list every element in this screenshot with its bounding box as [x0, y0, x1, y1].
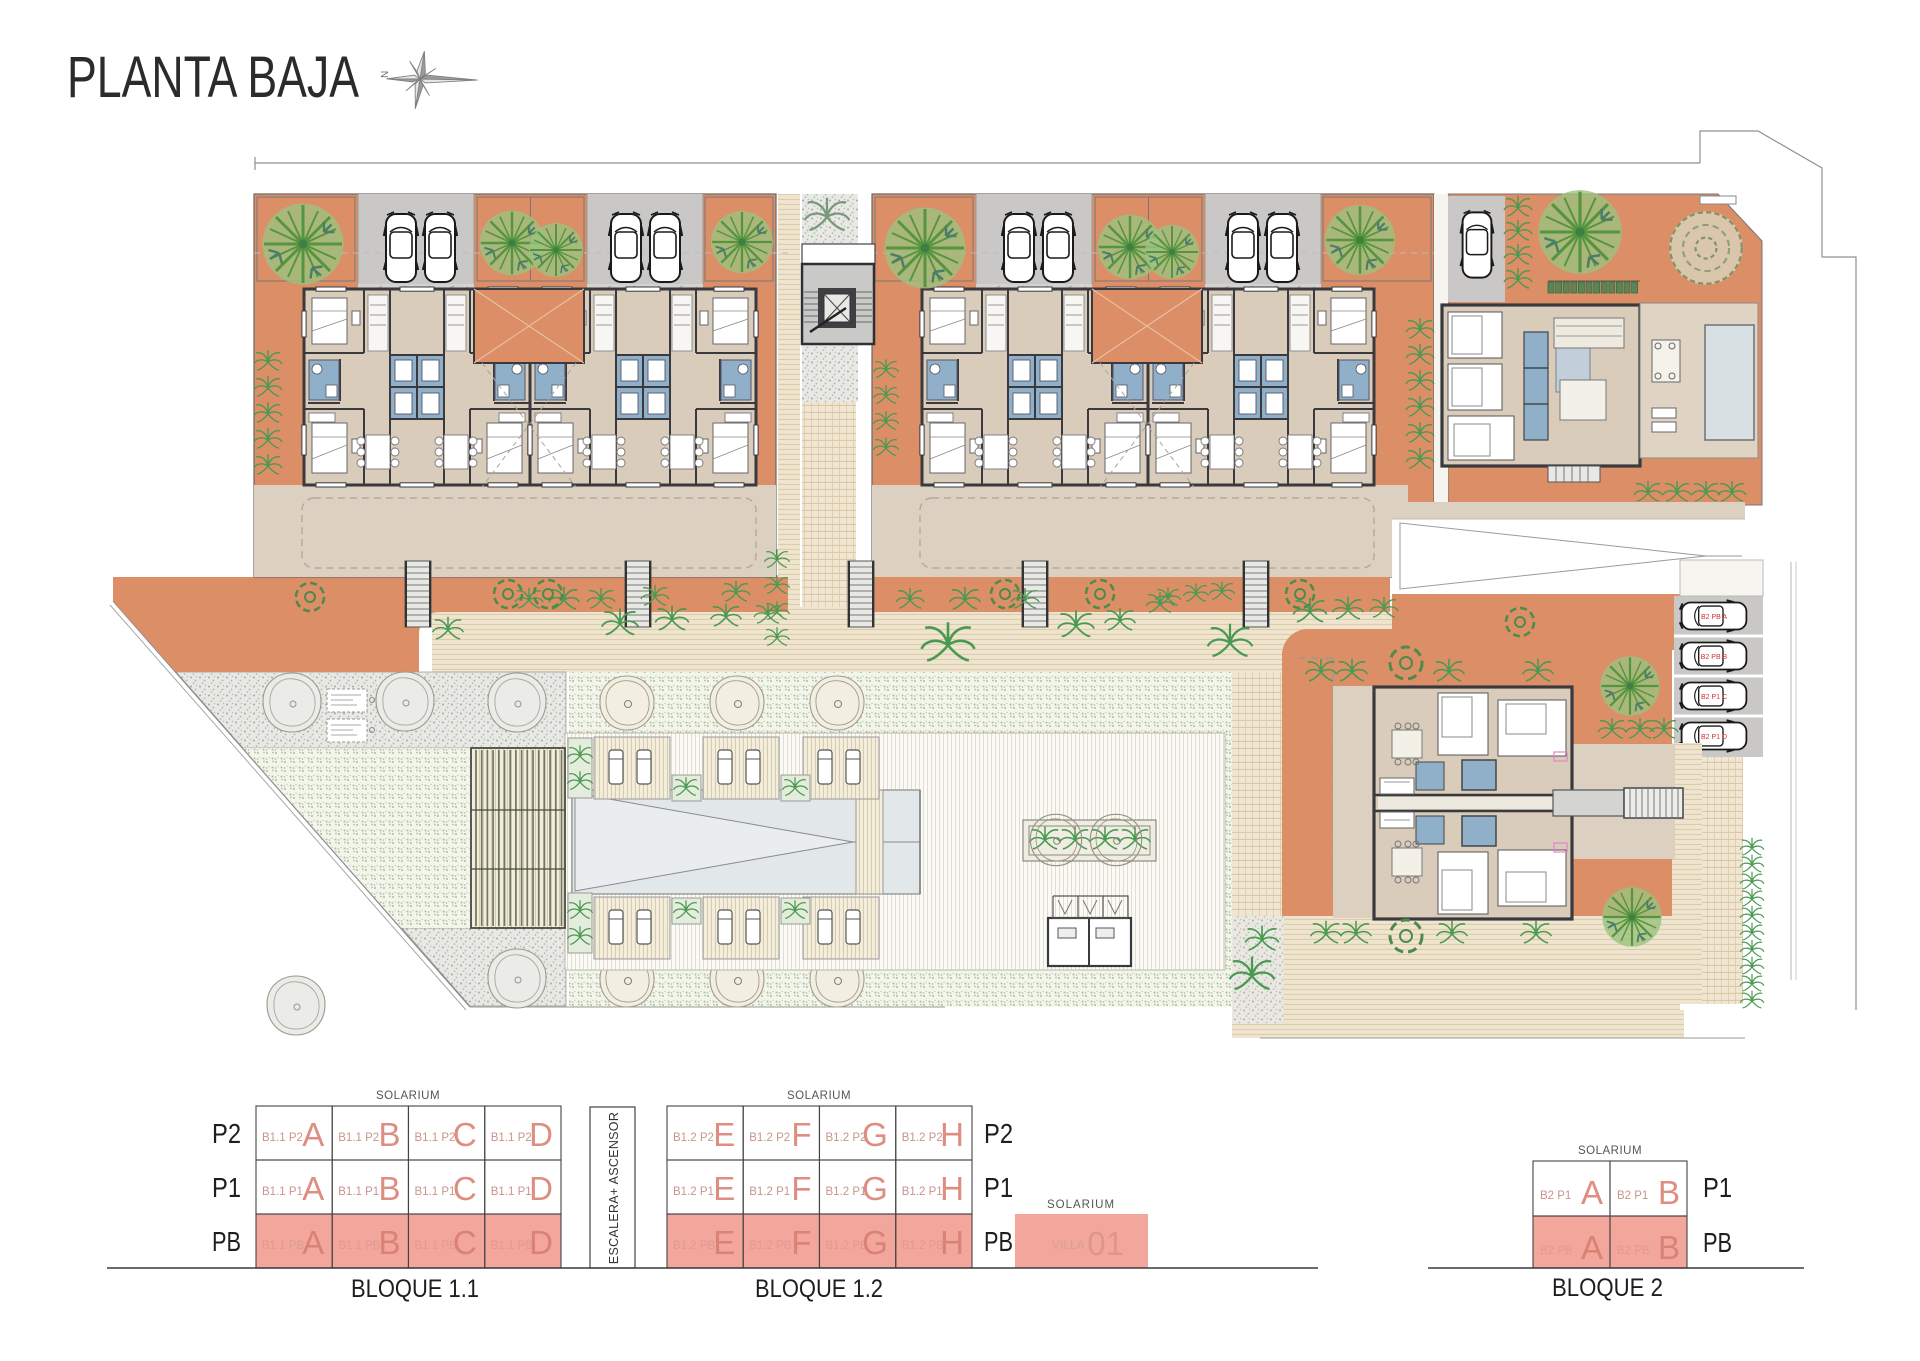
svg-text:B1.1 P1: B1.1 P1 [338, 1186, 379, 1198]
svg-text:VILLA: VILLA [1052, 1238, 1085, 1252]
svg-text:H: H [940, 1170, 964, 1207]
svg-text:B1.2 P1: B1.2 P1 [749, 1186, 790, 1198]
svg-text:B1.1 P2: B1.1 P2 [415, 1132, 456, 1144]
svg-text:P2: P2 [212, 1118, 241, 1149]
svg-text:A: A [1581, 1174, 1603, 1211]
svg-text:E: E [713, 1170, 735, 1207]
svg-text:C: C [453, 1170, 477, 1207]
svg-text:D: D [529, 1224, 553, 1261]
svg-text:P2: P2 [984, 1118, 1013, 1149]
svg-text:B1.1 P2: B1.1 P2 [491, 1132, 532, 1144]
svg-text:PLANTA BAJA: PLANTA BAJA [67, 45, 359, 110]
svg-text:F: F [791, 1224, 811, 1261]
svg-text:B1.1 PB: B1.1 PB [338, 1240, 381, 1252]
svg-text:B2 PB: B2 PB [1617, 1245, 1650, 1257]
svg-text:F: F [791, 1116, 811, 1153]
svg-text:B1.2 P2: B1.2 P2 [826, 1132, 867, 1144]
svg-text:C: C [453, 1116, 477, 1153]
svg-text:B1.2 P1: B1.2 P1 [902, 1186, 943, 1198]
svg-text:ESCALERA+ ASCENSOR: ESCALERA+ ASCENSOR [607, 1112, 621, 1264]
svg-text:BLOQUE 2: BLOQUE 2 [1552, 1274, 1663, 1302]
svg-text:B1.2 P2: B1.2 P2 [902, 1132, 943, 1144]
svg-text:PB: PB [1703, 1227, 1732, 1258]
svg-text:B1.2 PB: B1.2 PB [673, 1240, 716, 1252]
svg-text:C: C [453, 1224, 477, 1261]
svg-text:A: A [302, 1116, 324, 1153]
svg-text:B2 PB A: B2 PB A [1701, 614, 1727, 621]
svg-text:P1: P1 [212, 1172, 241, 1203]
svg-text:B1.1 P1: B1.1 P1 [262, 1186, 303, 1198]
svg-text:F: F [791, 1170, 811, 1207]
svg-text:PB: PB [984, 1226, 1013, 1257]
svg-text:B2 P1 D: B2 P1 D [1701, 734, 1727, 741]
svg-text:B: B [378, 1116, 400, 1153]
svg-text:B1.2 P2: B1.2 P2 [749, 1132, 790, 1144]
svg-text:D: D [529, 1170, 553, 1207]
svg-text:B1.2 PB: B1.2 PB [749, 1240, 792, 1252]
svg-text:G: G [862, 1224, 888, 1261]
svg-text:H: H [940, 1224, 964, 1261]
svg-text:BLOQUE 1.2: BLOQUE 1.2 [755, 1275, 883, 1303]
svg-text:P1: P1 [1703, 1172, 1732, 1203]
svg-text:E: E [713, 1224, 735, 1261]
svg-text:B1.2 P1: B1.2 P1 [673, 1186, 714, 1198]
svg-text:B1.1 P2: B1.1 P2 [262, 1132, 303, 1144]
svg-text:01: 01 [1087, 1225, 1124, 1262]
svg-text:D: D [529, 1116, 553, 1153]
svg-text:B1.1 P1: B1.1 P1 [415, 1186, 456, 1198]
svg-text:B1.2 P2: B1.2 P2 [673, 1132, 714, 1144]
svg-text:B: B [1658, 1174, 1680, 1211]
svg-text:B2 PB: B2 PB [1540, 1245, 1573, 1257]
svg-text:B1.1 PB: B1.1 PB [491, 1240, 534, 1252]
svg-text:A: A [302, 1224, 324, 1261]
svg-text:B2 P1: B2 P1 [1617, 1190, 1648, 1202]
svg-text:A: A [1581, 1229, 1603, 1266]
svg-text:B1.1 PB: B1.1 PB [415, 1240, 458, 1252]
svg-text:BLOQUE 1.1: BLOQUE 1.1 [351, 1275, 479, 1303]
svg-text:H: H [940, 1116, 964, 1153]
svg-text:SOLARIUM: SOLARIUM [376, 1090, 440, 1102]
svg-text:G: G [862, 1116, 888, 1153]
svg-text:B: B [1658, 1229, 1680, 1266]
svg-text:B1.1 P2: B1.1 P2 [338, 1132, 379, 1144]
svg-text:SOLARIUM: SOLARIUM [1047, 1199, 1115, 1211]
svg-text:B1.2 P1: B1.2 P1 [826, 1186, 867, 1198]
svg-text:B2 P1: B2 P1 [1540, 1190, 1571, 1202]
svg-text:B2 P1 C: B2 P1 C [1701, 694, 1727, 701]
svg-text:A: A [302, 1170, 324, 1207]
svg-text:B1.2 PB: B1.2 PB [902, 1240, 945, 1252]
svg-text:SOLARIUM: SOLARIUM [1578, 1145, 1642, 1157]
svg-text:E: E [713, 1116, 735, 1153]
svg-text:PB: PB [212, 1226, 241, 1257]
svg-text:B: B [378, 1224, 400, 1261]
svg-text:B2 PB B: B2 PB B [1701, 654, 1728, 661]
svg-text:G: G [862, 1170, 888, 1207]
svg-text:P1: P1 [984, 1172, 1013, 1203]
svg-text:B: B [378, 1170, 400, 1207]
svg-text:N: N [380, 71, 391, 78]
svg-text:B1.1 PB: B1.1 PB [262, 1240, 305, 1252]
svg-text:B1.1 P1: B1.1 P1 [491, 1186, 532, 1198]
svg-text:SOLARIUM: SOLARIUM [787, 1090, 851, 1102]
